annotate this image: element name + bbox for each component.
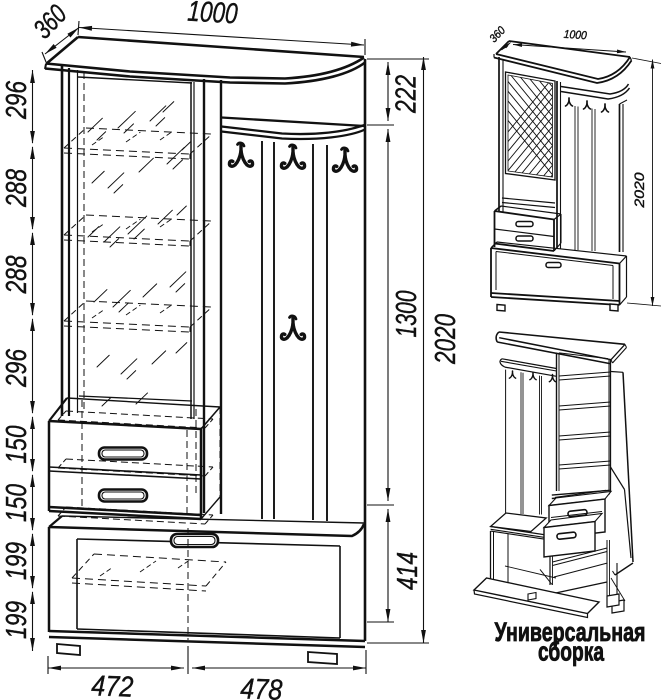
svg-text:2020: 2020 — [632, 172, 647, 209]
svg-text:414: 414 — [392, 552, 424, 590]
svg-text:1000: 1000 — [563, 29, 587, 43]
svg-text:1300: 1300 — [391, 291, 423, 338]
svg-text:150: 150 — [1, 426, 33, 464]
svg-text:222: 222 — [391, 75, 423, 114]
svg-text:472: 472 — [91, 670, 134, 700]
svg-text:296: 296 — [1, 80, 33, 119]
svg-text:2020: 2020 — [430, 314, 462, 365]
svg-text:199: 199 — [1, 542, 33, 580]
svg-text:150: 150 — [1, 484, 33, 522]
svg-text:1000: 1000 — [187, 0, 239, 31]
svg-text:288: 288 — [1, 256, 33, 295]
svg-text:296: 296 — [1, 348, 33, 387]
svg-text:288: 288 — [1, 169, 33, 208]
svg-text:199: 199 — [1, 601, 33, 639]
svg-text:478: 478 — [240, 673, 283, 700]
svg-text:сборка: сборка — [538, 637, 604, 667]
